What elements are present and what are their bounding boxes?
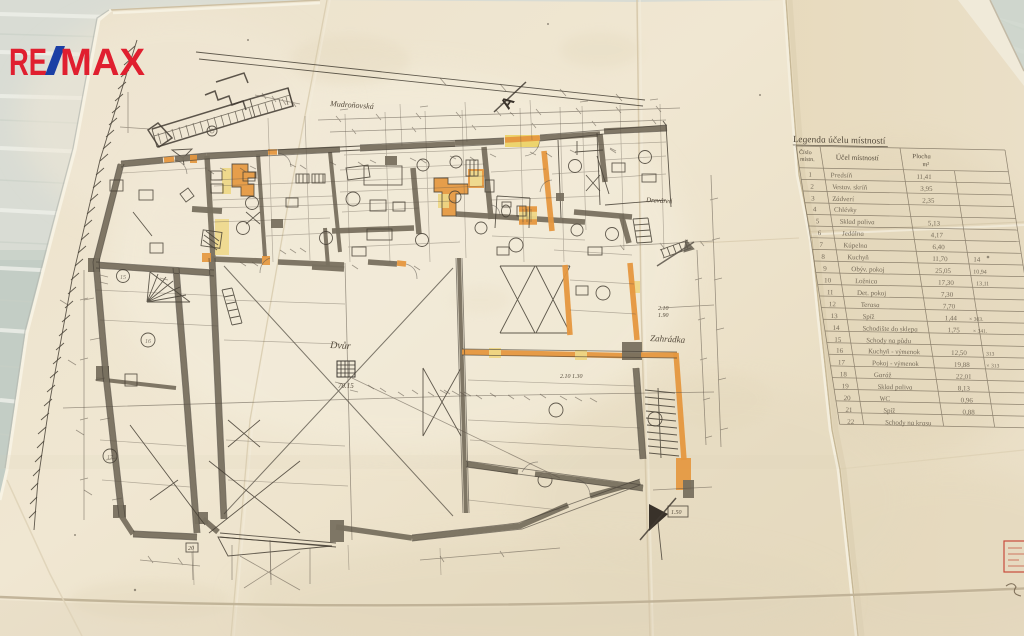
- svg-text:11,41: 11,41: [916, 173, 932, 181]
- svg-text:Sklad paliva: Sklad paliva: [839, 218, 876, 227]
- svg-text:Kúpelna: Kúpelna: [842, 241, 868, 249]
- svg-text:Spíž: Spíž: [883, 407, 896, 415]
- svg-text:Kuchyň: Kuchyň: [846, 253, 870, 261]
- svg-text:Ložnica: Ložnica: [853, 277, 878, 285]
- svg-text:× 313: × 313: [986, 363, 1001, 369]
- svg-text:6,40: 6,40: [932, 243, 946, 251]
- svg-text:16: 16: [145, 339, 151, 345]
- svg-text:5,13: 5,13: [927, 219, 941, 227]
- svg-text:21: 21: [845, 406, 853, 414]
- svg-text:7,30: 7,30: [940, 291, 954, 299]
- svg-text:Chlévky: Chlévky: [833, 206, 858, 214]
- svg-text:Jedálna: Jedálna: [841, 230, 865, 238]
- svg-text:25,05: 25,05: [935, 267, 952, 275]
- svg-text:1.50: 1.50: [671, 510, 682, 516]
- svg-text:11,70: 11,70: [932, 255, 949, 263]
- svg-text:Sklad paliva: Sklad paliva: [877, 383, 914, 392]
- svg-text:Pokoj - výmenok: Pokoj - výmenok: [870, 359, 920, 368]
- svg-text:0,88: 0,88: [962, 408, 976, 416]
- svg-text:MAX: MAX: [60, 42, 146, 84]
- svg-text:Zádverí: Zádverí: [832, 195, 856, 203]
- svg-text:× 303.: × 303.: [968, 317, 984, 323]
- svg-text:místn.: místn.: [800, 157, 815, 163]
- svg-text:Spíž: Spíž: [862, 313, 875, 321]
- svg-text:0,96: 0,96: [960, 396, 974, 404]
- svg-text:Dreváreň: Dreváreň: [645, 196, 673, 205]
- svg-text:Dvůr: Dvůr: [329, 340, 351, 352]
- svg-text:WC: WC: [879, 395, 891, 403]
- svg-text:× 341.: × 341.: [972, 328, 988, 335]
- svg-text:12,50: 12,50: [950, 349, 967, 357]
- svg-text:13,11: 13,11: [976, 281, 990, 287]
- svg-text:15: 15: [120, 275, 126, 281]
- svg-text:Schody na půdu: Schody na půdu: [866, 336, 912, 345]
- svg-text:2,35: 2,35: [922, 197, 936, 205]
- svg-text:Terasa: Terasa: [860, 301, 881, 309]
- svg-text:Kuchyň - výmenok: Kuchyň - výmenok: [866, 347, 921, 356]
- svg-text:1,75: 1,75: [947, 326, 961, 334]
- svg-text:Predsíň: Predsíň: [829, 171, 853, 179]
- svg-text:1.90: 1.90: [658, 313, 669, 319]
- svg-text:Zahrádka: Zahrádka: [650, 333, 686, 345]
- svg-text:2.10 1.30: 2.10 1.30: [560, 374, 583, 380]
- svg-text:11: 11: [826, 288, 834, 296]
- svg-text:Schodište do sklepa: Schodište do sklepa: [862, 325, 919, 334]
- svg-text:Schody na krasu: Schody na krasu: [885, 419, 933, 428]
- svg-text:Vestav. skríň: Vestav. skríň: [832, 183, 869, 192]
- svg-text:8,13: 8,13: [957, 384, 971, 392]
- svg-text:19,88: 19,88: [953, 361, 970, 369]
- svg-text:22,01: 22,01: [955, 373, 972, 381]
- svg-text:1,44: 1,44: [944, 314, 958, 322]
- svg-text:Plocha: Plocha: [911, 153, 932, 160]
- svg-text:17,30: 17,30: [937, 279, 954, 287]
- svg-text:Obýv. pokoj: Obýv. pokoj: [851, 265, 886, 274]
- svg-text:7,70: 7,70: [942, 302, 956, 310]
- svg-text:3,95: 3,95: [919, 185, 934, 193]
- svg-text:4,17: 4,17: [930, 231, 944, 239]
- svg-text:313: 313: [985, 352, 995, 358]
- svg-text:Det. pokoj: Det. pokoj: [855, 289, 886, 297]
- svg-text:2.10: 2.10: [658, 306, 669, 312]
- svg-text:RE: RE: [9, 42, 47, 84]
- svg-text:Účel místností: Účel místností: [835, 152, 881, 163]
- svg-text:Garáž: Garáž: [873, 371, 892, 379]
- svg-text:10,94: 10,94: [973, 269, 988, 276]
